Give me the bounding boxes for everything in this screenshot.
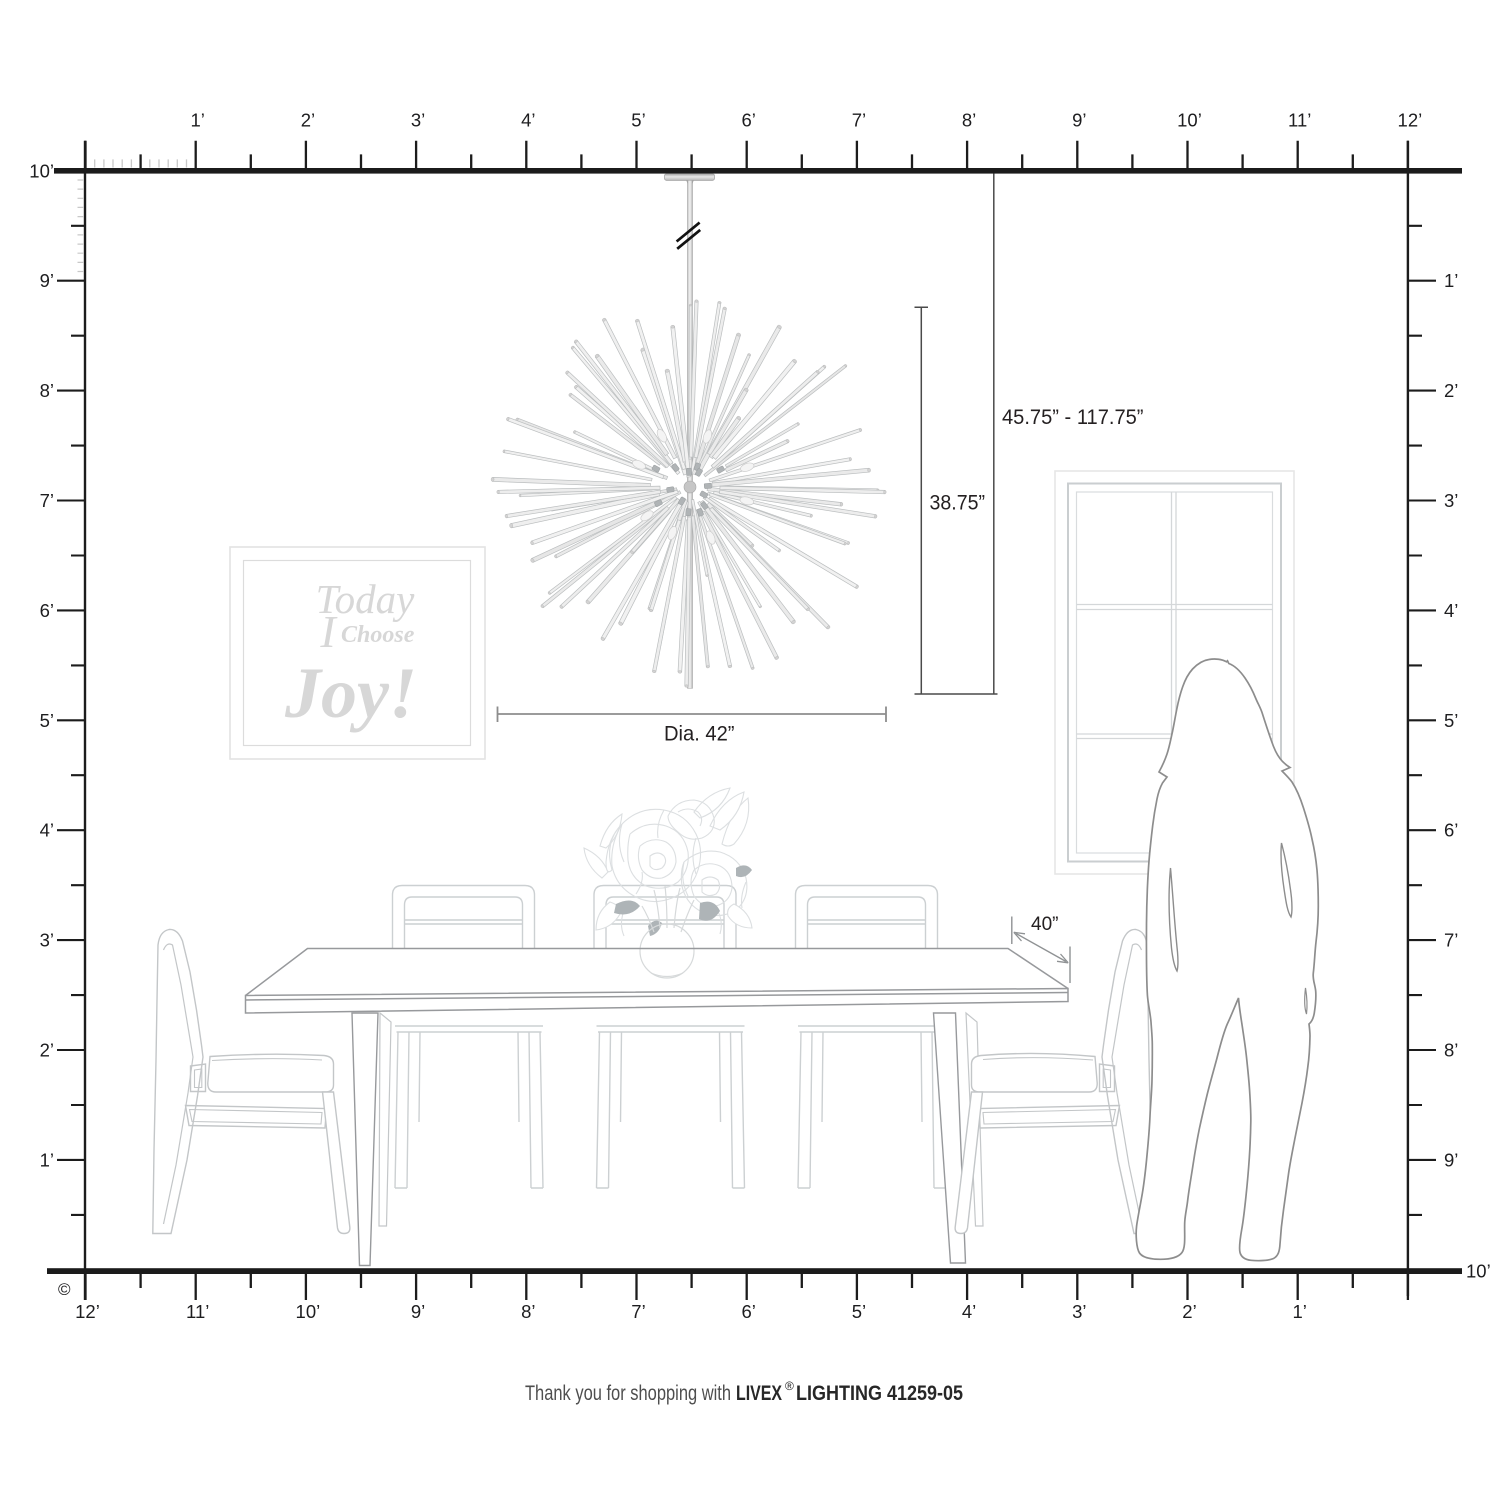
svg-text:6’: 6’ bbox=[741, 1301, 755, 1322]
svg-text:45.75” - 117.75”: 45.75” - 117.75” bbox=[1002, 405, 1144, 429]
svg-text:6’: 6’ bbox=[741, 110, 755, 131]
svg-text:7’: 7’ bbox=[852, 110, 866, 131]
svg-text:3’: 3’ bbox=[40, 930, 54, 951]
svg-text:1’: 1’ bbox=[1292, 1301, 1306, 1322]
svg-text:9’: 9’ bbox=[411, 1301, 425, 1322]
svg-text:Choose: Choose bbox=[341, 622, 415, 648]
svg-text:10’: 10’ bbox=[1466, 1261, 1491, 1282]
svg-text:11’: 11’ bbox=[186, 1301, 209, 1322]
svg-text:10’: 10’ bbox=[296, 1301, 321, 1322]
svg-text:6’: 6’ bbox=[1444, 820, 1458, 841]
svg-text:I: I bbox=[319, 606, 338, 657]
svg-text:5’: 5’ bbox=[1444, 710, 1458, 731]
svg-text:8’: 8’ bbox=[962, 110, 976, 131]
svg-text:1’: 1’ bbox=[1444, 270, 1458, 291]
svg-text:9’: 9’ bbox=[40, 270, 54, 291]
svg-text:4’: 4’ bbox=[1444, 600, 1458, 621]
svg-text:8’: 8’ bbox=[521, 1301, 535, 1322]
svg-text:©: © bbox=[58, 1280, 71, 1299]
svg-text:2’: 2’ bbox=[1444, 380, 1458, 401]
svg-text:4’: 4’ bbox=[40, 820, 54, 841]
svg-text:7’: 7’ bbox=[40, 490, 54, 511]
svg-text:5’: 5’ bbox=[40, 710, 54, 731]
svg-text:2’: 2’ bbox=[1182, 1301, 1196, 1322]
svg-text:4’: 4’ bbox=[962, 1301, 976, 1322]
svg-text:6’: 6’ bbox=[40, 600, 54, 621]
svg-text:11’: 11’ bbox=[1288, 110, 1311, 131]
svg-text:1’: 1’ bbox=[190, 110, 204, 131]
svg-text:2’: 2’ bbox=[301, 110, 315, 131]
svg-text:1’: 1’ bbox=[40, 1149, 54, 1170]
svg-text:8’: 8’ bbox=[1444, 1040, 1458, 1061]
svg-text:Joy!: Joy! bbox=[284, 653, 417, 733]
svg-text:9’: 9’ bbox=[1072, 110, 1086, 131]
svg-text:40”: 40” bbox=[1031, 914, 1058, 935]
svg-text:9’: 9’ bbox=[1444, 1149, 1458, 1170]
svg-text:12’: 12’ bbox=[75, 1301, 100, 1322]
svg-text:12’: 12’ bbox=[1398, 110, 1423, 131]
svg-text:3’: 3’ bbox=[1444, 490, 1458, 511]
svg-text:4’: 4’ bbox=[521, 110, 535, 131]
svg-text:10’: 10’ bbox=[29, 160, 54, 181]
svg-text:Thank you for shopping with: Thank you for shopping with bbox=[525, 1382, 731, 1405]
svg-text:10’: 10’ bbox=[1177, 110, 1202, 131]
svg-text:7’: 7’ bbox=[631, 1301, 645, 1322]
svg-text:2’: 2’ bbox=[40, 1040, 54, 1061]
svg-text:5’: 5’ bbox=[631, 110, 645, 131]
svg-text:7’: 7’ bbox=[1444, 930, 1458, 951]
svg-text:5’: 5’ bbox=[852, 1301, 866, 1322]
svg-text:38.75”: 38.75” bbox=[930, 492, 986, 515]
svg-text:3’: 3’ bbox=[1072, 1301, 1086, 1322]
svg-text:8’: 8’ bbox=[40, 380, 54, 401]
svg-text:®: ® bbox=[785, 1379, 794, 1393]
svg-text:LIVEX: LIVEX bbox=[736, 1381, 782, 1405]
svg-text:3’: 3’ bbox=[411, 110, 425, 131]
svg-text:LIGHTING 41259-05: LIGHTING 41259-05 bbox=[796, 1381, 963, 1405]
svg-text:Dia. 42”: Dia. 42” bbox=[664, 723, 735, 746]
